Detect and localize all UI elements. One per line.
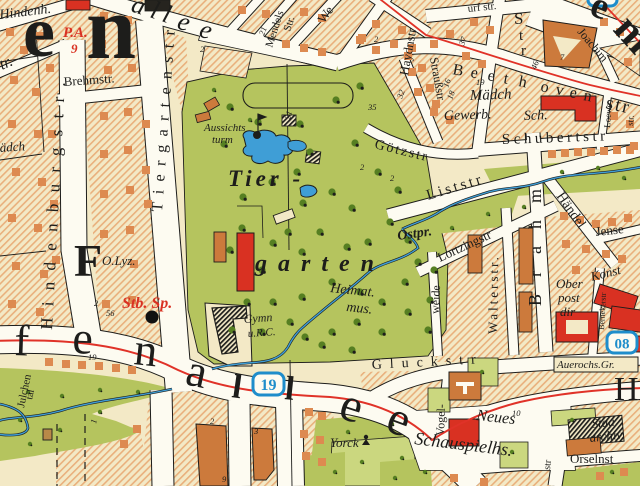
svg-text:mus.: mus. [346,300,373,318]
svg-text:3: 3 [253,426,258,436]
svg-text:9: 9 [71,41,78,56]
svg-text:Aussichts: Aussichts [203,122,246,134]
svg-text:Stb. Sp.: Stb. Sp. [122,295,172,312]
svg-text:dir: dir [560,304,576,319]
svg-text:garten: garten [254,251,385,277]
svg-text:Brahm: Brahm [525,172,545,306]
svg-text:S: S [514,9,523,28]
svg-text:ädch: ädch [0,138,25,155]
svg-text:Sch.: Sch. [524,108,548,124]
svg-text:F: F [74,235,102,286]
svg-text:Gymn: Gymn [243,310,273,326]
svg-text:r: r [521,43,526,59]
svg-text:post: post [557,290,580,305]
svg-text:Yorck: Yorck [330,435,359,450]
svg-text:Jense: Jense [595,221,625,239]
svg-text:19: 19 [261,377,277,394]
svg-text:08: 08 [615,337,630,353]
svg-text:str: str [542,459,554,471]
svg-text:n: n [86,0,136,78]
svg-text:O.Lyz.: O.Lyz. [102,253,136,268]
svg-text:Loewe: Loewe [602,103,614,128]
svg-text:str.: str. [625,115,636,126]
svg-text:35: 35 [367,102,377,112]
svg-text:weide: weide [428,285,443,314]
svg-text:56: 56 [106,308,115,318]
svg-text:19: 19 [88,352,97,362]
svg-text:10: 10 [512,408,521,418]
svg-text:Auerochs.Gr.: Auerochs.Gr. [556,359,615,371]
svg-text:Ober: Ober [556,276,584,291]
svg-text:turm: turm [212,134,233,146]
svg-text:Orselnst: Orselnst [570,451,614,466]
svg-text:H: H [614,371,639,408]
svg-text:Mädch: Mädch [469,87,512,104]
svg-text:Gewerb.: Gewerb. [444,107,492,124]
svg-text:Tier -: Tier - [228,166,304,191]
svg-text:P.A.: P.A. [63,25,88,41]
svg-text:Walterstr.: Walterstr. [485,254,501,334]
svg-text:f: f [14,316,31,365]
svg-text:19: 19 [476,77,485,87]
svg-text:u.R.C.: u.R.C. [247,326,276,340]
